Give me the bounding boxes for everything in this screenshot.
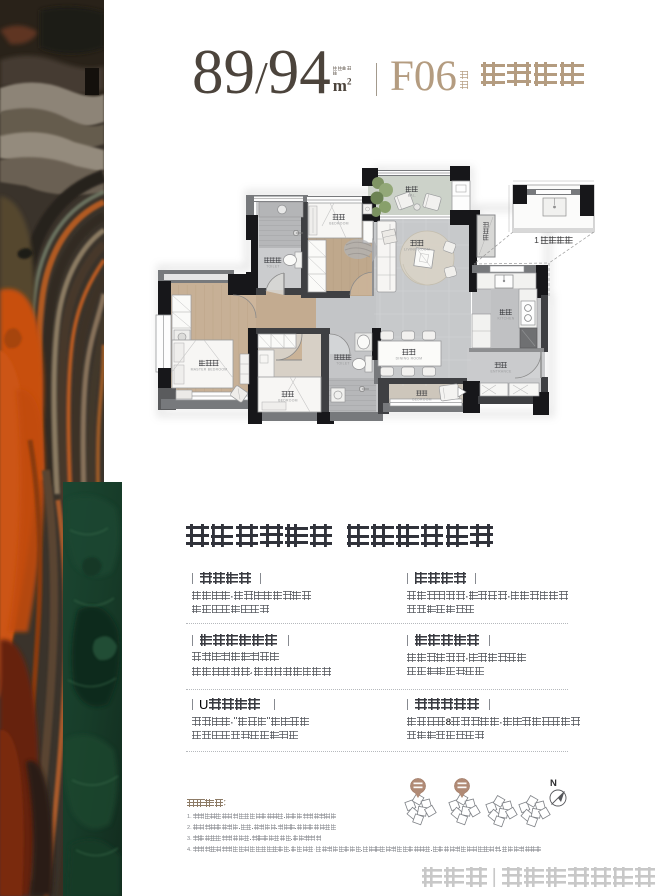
- svg-text:TOILET: TOILET: [266, 265, 280, 269]
- svg-text:MASTER BEDROOM: MASTER BEDROOM: [191, 368, 228, 372]
- svg-text:BEDROOM: BEDROOM: [329, 222, 349, 226]
- svg-text:BEDROOM: BEDROOM: [278, 399, 298, 403]
- svg-text:DINING ROOM: DINING ROOM: [396, 357, 423, 361]
- svg-text:KITCHEN: KITCHEN: [498, 317, 515, 321]
- svg-text:N: N: [550, 778, 557, 789]
- svg-text:LIVING ROOM: LIVING ROOM: [404, 248, 430, 252]
- svg-text:1: 1: [534, 235, 539, 245]
- svg-text:ENTRANCE: ENTRANCE: [490, 370, 511, 374]
- svg-text:TOILET: TOILET: [336, 362, 350, 366]
- svg-text:BEDROOM: BEDROOM: [412, 398, 432, 402]
- svg-text:BAL.: BAL.: [408, 194, 417, 198]
